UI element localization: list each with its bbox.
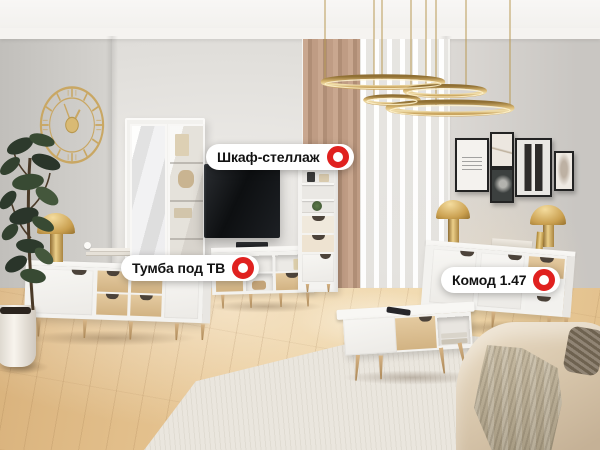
decor-figurine	[252, 281, 266, 290]
shelf-unit-drawer	[302, 235, 334, 252]
shelf-unit-drawer	[302, 216, 334, 233]
furniture-leg	[378, 355, 384, 379]
hotspot-label: Шкаф-стеллаж	[217, 149, 320, 165]
vase	[178, 170, 194, 188]
hotspot-tv-stand[interactable]: Тумба под ТВ	[121, 255, 259, 281]
hotspot-label: Тумба под ТВ	[132, 260, 225, 276]
shelf-unit-open-shelves	[302, 169, 334, 213]
hotspot-shelf-unit[interactable]: Шкаф-стеллаж	[206, 144, 354, 170]
furniture-leg	[35, 318, 42, 336]
decor-box	[174, 208, 192, 218]
magazine-stack	[84, 248, 130, 258]
hotspot-marker-icon[interactable]	[232, 257, 254, 279]
potted-plant	[0, 118, 80, 318]
coffee-table-body	[343, 312, 473, 356]
frame-art	[492, 134, 512, 166]
pendant-ring-chandelier	[316, 0, 528, 118]
furniture-leg	[305, 284, 310, 292]
striped-pillow	[562, 325, 600, 377]
sideboard-drawer	[130, 295, 162, 317]
furniture-leg	[81, 320, 88, 338]
furniture-leg	[305, 292, 310, 306]
books	[175, 134, 189, 156]
furniture-leg	[248, 294, 253, 308]
mushroom-lamp	[436, 200, 470, 243]
small-plant	[312, 201, 322, 211]
hotspot-label: Комод 1.47	[452, 272, 526, 288]
tv	[204, 164, 280, 238]
komod-drawer	[525, 295, 562, 313]
hotspot-komod[interactable]: Комод 1.47	[441, 267, 560, 293]
coffee-table-panel	[343, 316, 397, 355]
frame-art	[462, 154, 482, 172]
picture-frame-sketch	[554, 151, 574, 191]
frame-art	[492, 170, 512, 201]
furniture-leg	[220, 295, 225, 309]
furniture-leg	[173, 323, 180, 340]
picture-frame-botanical	[490, 132, 514, 168]
frame-art	[520, 144, 547, 191]
furniture-leg	[438, 347, 447, 374]
furniture-leg	[353, 355, 361, 381]
hotspot-marker-icon[interactable]	[533, 269, 555, 291]
coffee-table-niche	[437, 316, 471, 346]
furniture-leg	[127, 322, 134, 340]
coffee-table-drawer	[395, 316, 437, 350]
gold-candlestick	[536, 232, 544, 250]
picture-frame-typography	[455, 138, 489, 192]
frame-art	[556, 153, 572, 189]
hotspot-marker-icon[interactable]	[327, 146, 349, 168]
folded-textile	[441, 338, 467, 345]
living-room-scene: Шкаф-стеллаж Тумба под ТВ Комод 1.47	[0, 0, 600, 450]
furniture-leg	[326, 284, 331, 292]
furniture-leg	[199, 324, 206, 340]
mini-frame	[307, 172, 315, 182]
wall-corner-left	[106, 36, 118, 298]
books	[319, 174, 329, 182]
furniture-leg	[278, 293, 283, 307]
shelf-unit-door	[302, 254, 334, 282]
cup	[84, 242, 91, 249]
picture-frame-figures	[515, 138, 552, 197]
sideboard-drawer	[96, 293, 128, 315]
shelf-unit	[298, 166, 338, 292]
picture-frame-photo	[490, 168, 514, 203]
